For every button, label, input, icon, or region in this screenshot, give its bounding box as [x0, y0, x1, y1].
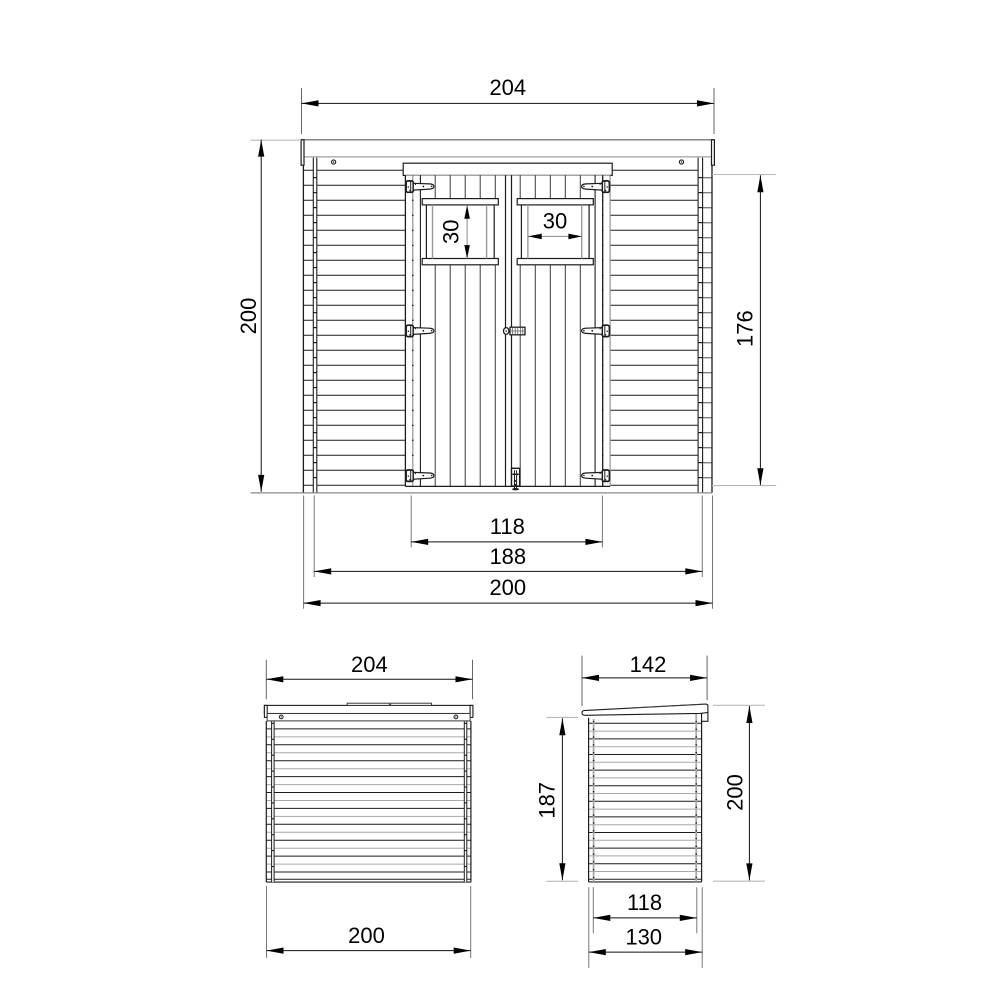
- svg-text:142: 142: [630, 652, 667, 677]
- svg-text:30: 30: [438, 220, 463, 244]
- svg-text:200: 200: [348, 923, 385, 948]
- svg-text:118: 118: [627, 890, 662, 915]
- svg-text:187: 187: [535, 782, 560, 819]
- svg-text:200: 200: [489, 575, 526, 600]
- svg-text:204: 204: [351, 652, 388, 677]
- svg-text:176: 176: [733, 310, 758, 347]
- svg-text:188: 188: [489, 544, 526, 569]
- svg-text:130: 130: [625, 924, 662, 949]
- svg-text:118: 118: [490, 514, 525, 539]
- svg-text:30: 30: [543, 209, 567, 234]
- svg-text:200: 200: [236, 298, 261, 335]
- svg-text:200: 200: [723, 774, 748, 811]
- svg-text:204: 204: [489, 75, 526, 100]
